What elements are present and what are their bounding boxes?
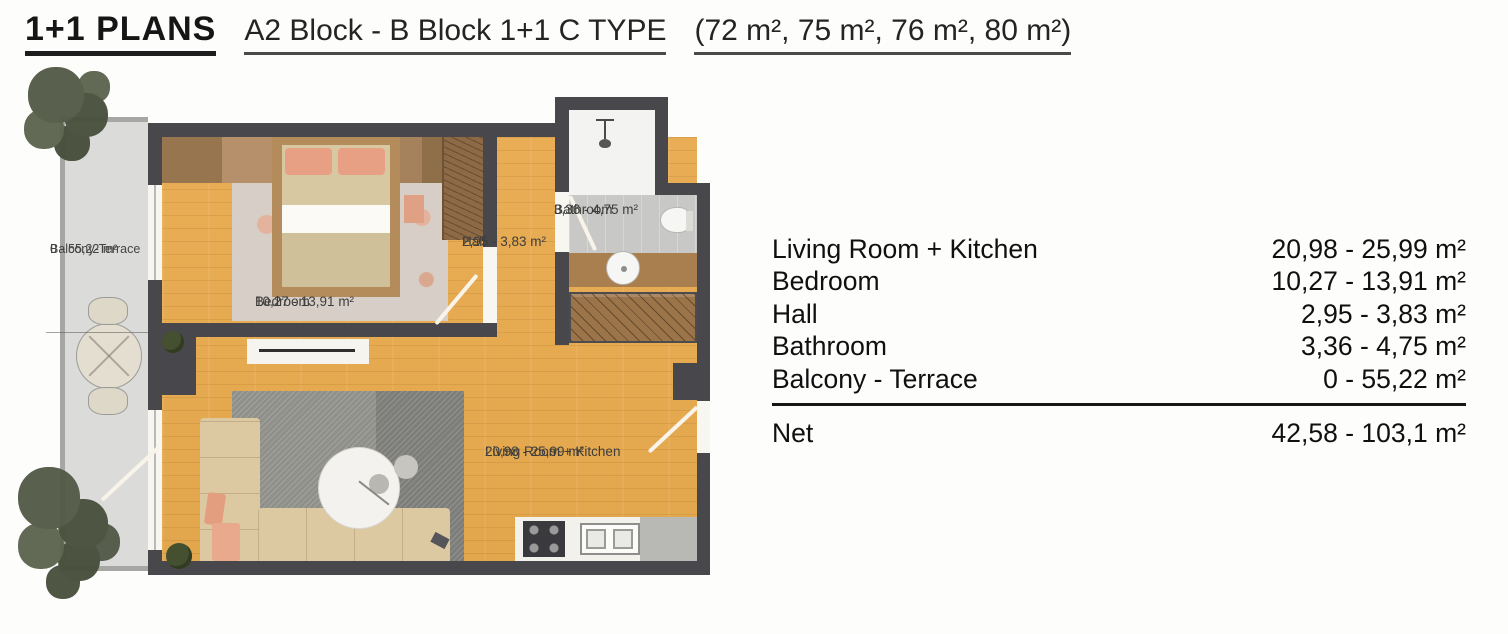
entry-door-gap [697, 401, 710, 453]
room-area: 3,36 - 4,75 m² [554, 201, 638, 218]
wall [697, 193, 710, 575]
table-row: Bathroom 3,36 - 4,75 m² [772, 331, 1466, 363]
room-area: 3,36 - 4,75 m² [1301, 331, 1466, 362]
floor-plan: Balcony-Terrace 0 - 55,22 m² Bedroom 10,… [60, 95, 712, 592]
table-row: Living Room + Kitchen 20,98 - 25,99 m² [772, 234, 1466, 266]
bedroom-window [148, 185, 162, 280]
plant [166, 543, 192, 569]
room-name: Living Room + Kitchen [772, 234, 1038, 265]
wall [148, 561, 710, 575]
balcony-edge [60, 566, 148, 571]
balcony-chair [88, 387, 128, 415]
wall [148, 323, 497, 337]
room-area: 0 - 55,22 m² [1323, 364, 1466, 395]
toilet-icon [660, 207, 692, 233]
pillow [285, 148, 332, 175]
tree [18, 467, 80, 529]
table-row: Balcony - Terrace 0 - 55,22 m² [772, 364, 1466, 396]
table-divider [772, 403, 1466, 406]
room-name: Hall [772, 299, 818, 330]
sofa-cushion [212, 523, 240, 561]
room-name: Balcony - Terrace [772, 364, 978, 395]
plan-size-list: (72 m², 75 m², 76 m², 80 m²) [694, 14, 1071, 55]
wall [555, 97, 668, 110]
room-area: 2,95 - 3,83 m² [462, 233, 546, 250]
room-area: 10,27 - 13,91 m² [1272, 266, 1466, 297]
table-row: Bedroom 10,27 - 13,91 m² [772, 266, 1466, 298]
net-row: Net 42,58 - 103,1 m² [772, 418, 1466, 449]
shower-area [569, 110, 655, 195]
room-area: 2,95 - 3,83 m² [1301, 299, 1466, 330]
balcony-edge [60, 117, 148, 122]
bed-sheet [282, 205, 390, 233]
stove-icon [523, 521, 565, 557]
area-table: Living Room + Kitchen 20,98 - 25,99 m² B… [772, 234, 1466, 449]
room-area: 0 - 55,22 m² [50, 241, 117, 258]
page: 1+1 PLANS A2 Block - B Block 1+1 C TYPE … [0, 0, 1508, 634]
balcony-chair [88, 297, 128, 325]
bedroom-door-gap [483, 247, 497, 323]
room-area: 20,98 - 25,99 m² [485, 443, 584, 460]
tv-unit [247, 339, 369, 364]
room-area: 10,27 - 13,91 m² [255, 293, 354, 310]
wall [655, 97, 668, 195]
section-line [46, 332, 162, 333]
net-label: Net [772, 418, 813, 449]
bed-blanket [282, 233, 390, 287]
wardrobe [442, 137, 483, 240]
bed [272, 135, 400, 297]
plant [162, 331, 184, 353]
wall-column [673, 363, 697, 400]
balcony-window [148, 410, 162, 550]
tree [28, 67, 84, 123]
room-name: Bedroom [772, 266, 880, 297]
room-name: Bathroom [772, 331, 887, 362]
hall-closet [569, 292, 697, 343]
shower-icon [604, 121, 606, 139]
wall [148, 123, 569, 137]
bathroom-sink-icon [606, 251, 640, 285]
kitchen-worktop [640, 517, 697, 561]
pillow [338, 148, 385, 175]
table-row: Hall 2,95 - 3,83 m² [772, 299, 1466, 331]
stool [394, 455, 418, 479]
nightstand [404, 195, 424, 223]
header: 1+1 PLANS A2 Block - B Block 1+1 C TYPE … [25, 10, 1071, 56]
room-area: 20,98 - 25,99 m² [1272, 234, 1466, 265]
coffee-table [318, 447, 400, 529]
page-title: 1+1 PLANS [25, 10, 216, 56]
kitchen-sink-icon [580, 523, 640, 555]
plan-subtitle: A2 Block - B Block 1+1 C TYPE [244, 14, 666, 55]
net-value: 42,58 - 103,1 m² [1272, 418, 1466, 449]
